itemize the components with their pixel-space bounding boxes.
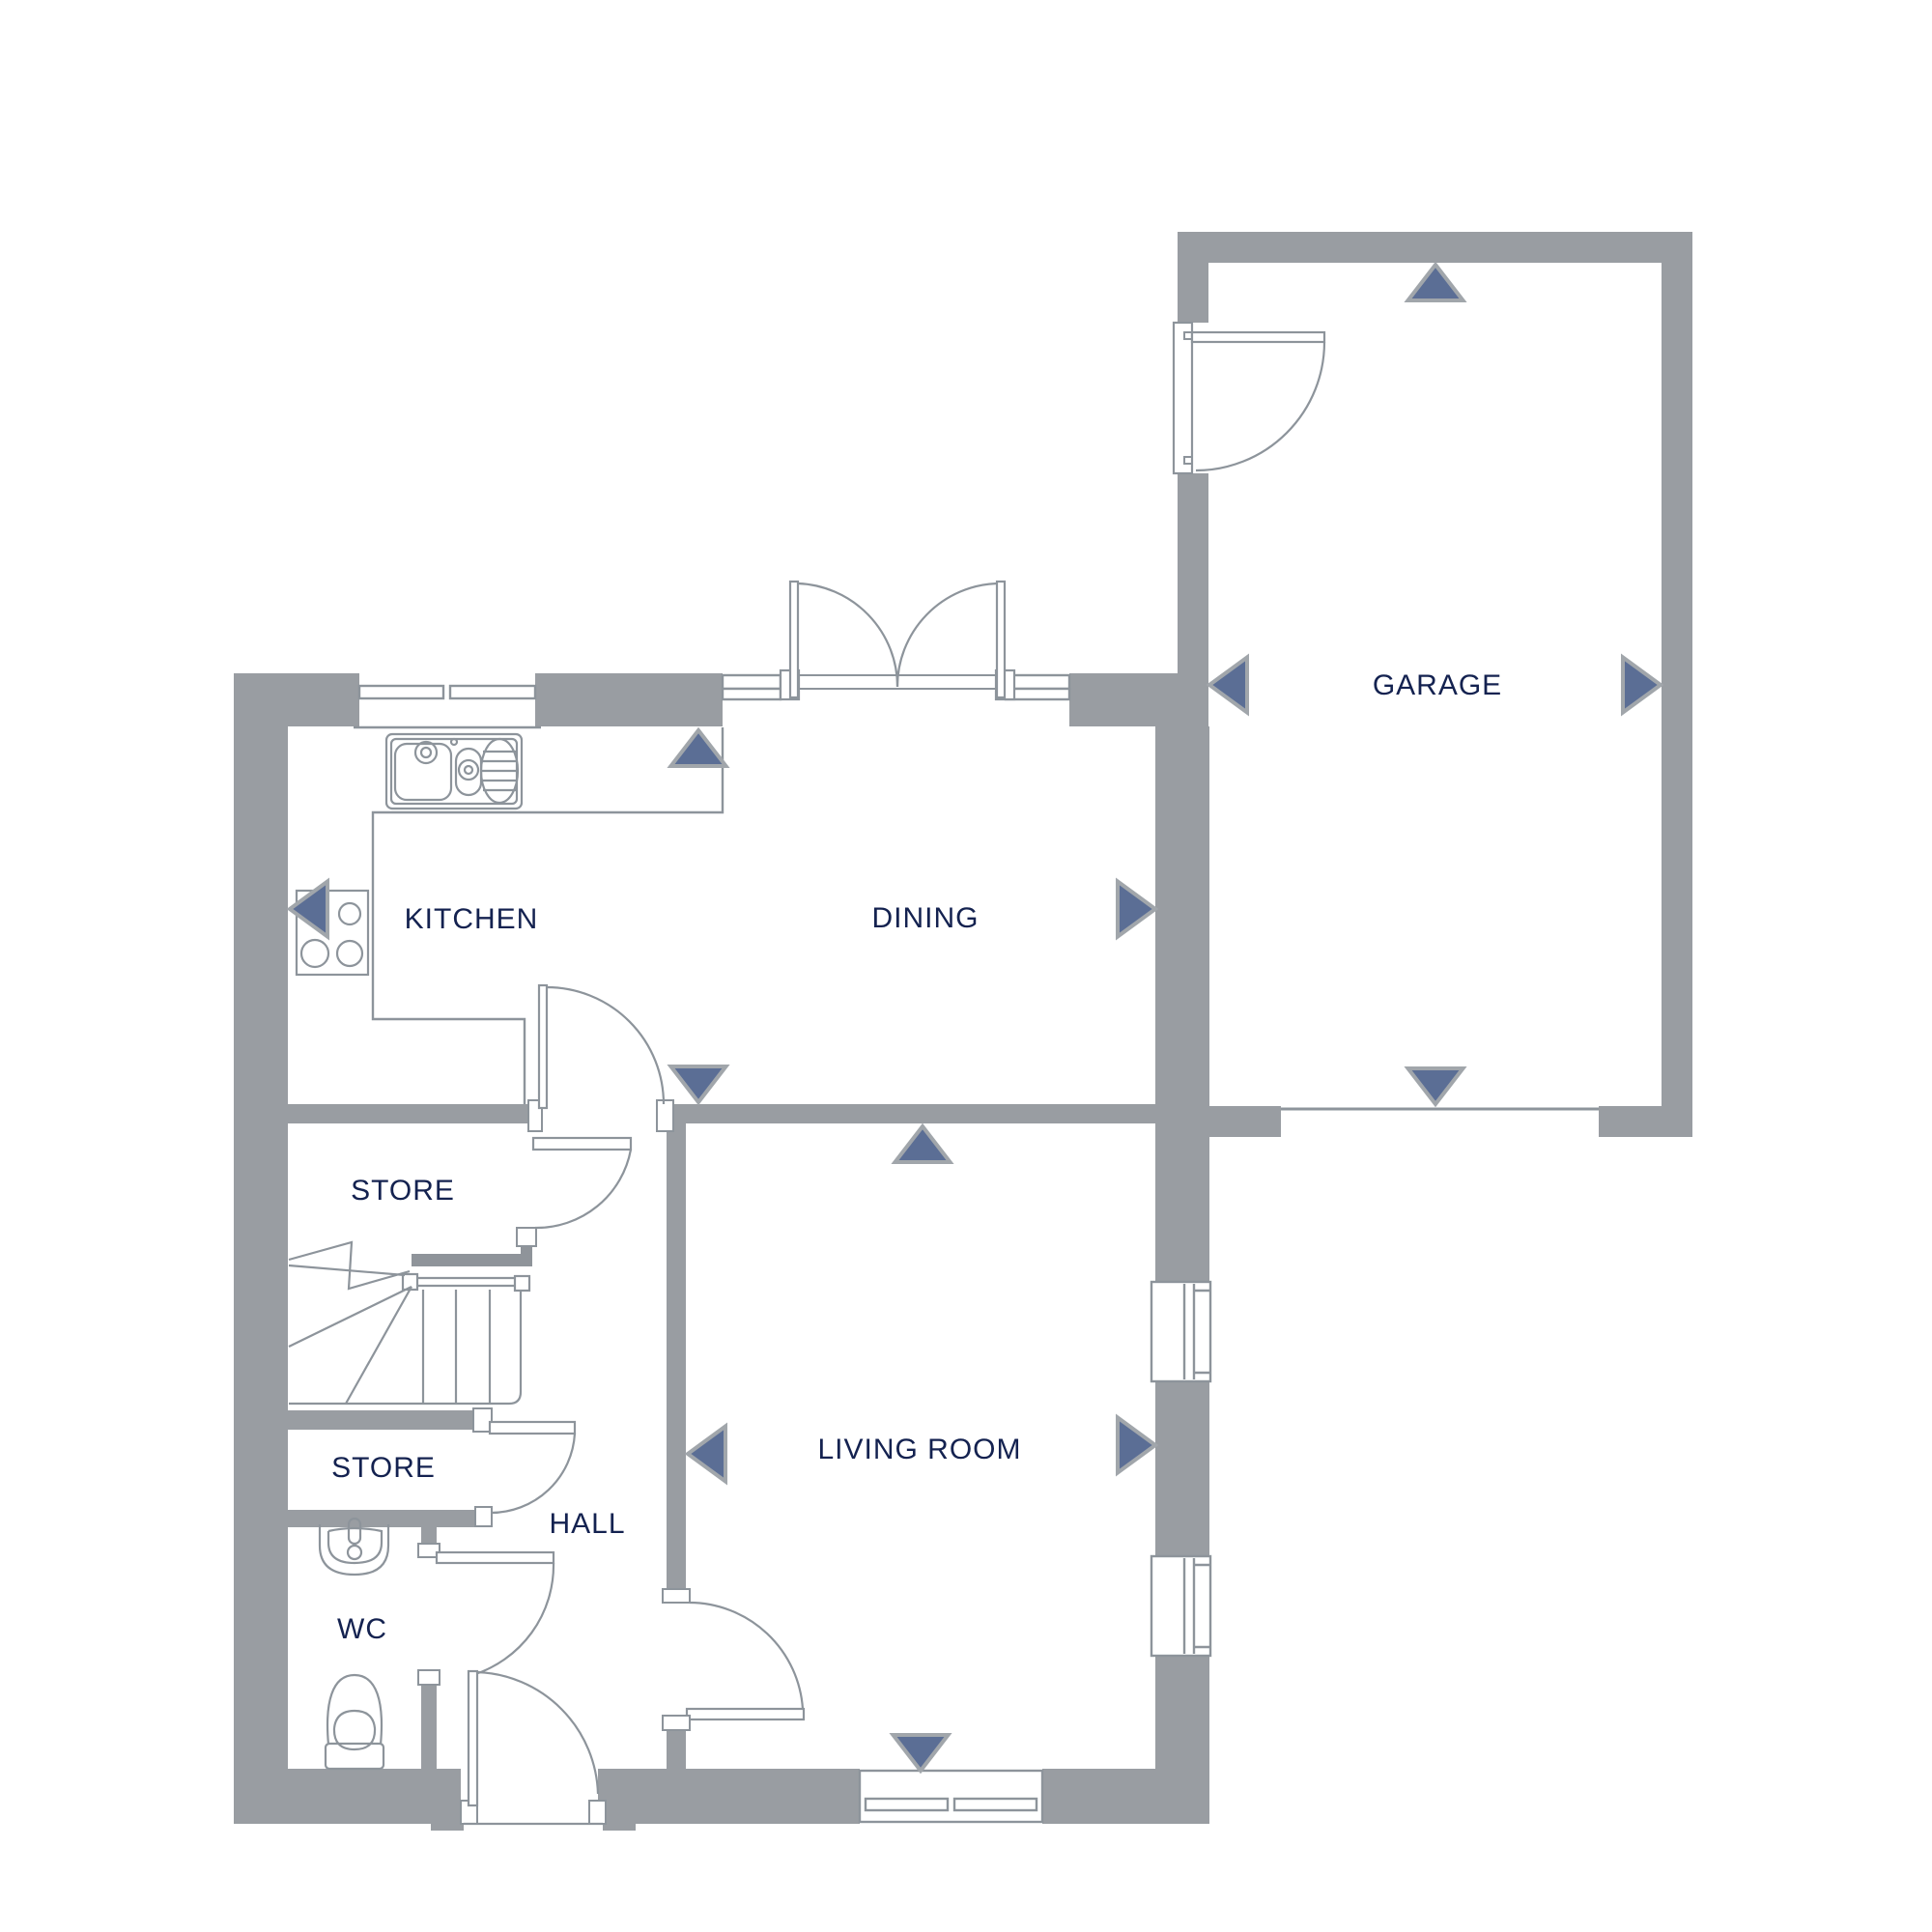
svg-text:DINING: DINING [872,902,980,934]
svg-text:STORE: STORE [351,1175,455,1207]
svg-text:LIVING ROOM: LIVING ROOM [817,1434,1021,1465]
svg-text:KITCHEN: KITCHEN [405,903,539,935]
svg-text:GARAGE: GARAGE [1373,669,1502,701]
svg-text:STORE: STORE [331,1452,436,1484]
svg-text:WC: WC [337,1613,387,1645]
svg-text:HALL: HALL [549,1508,625,1540]
